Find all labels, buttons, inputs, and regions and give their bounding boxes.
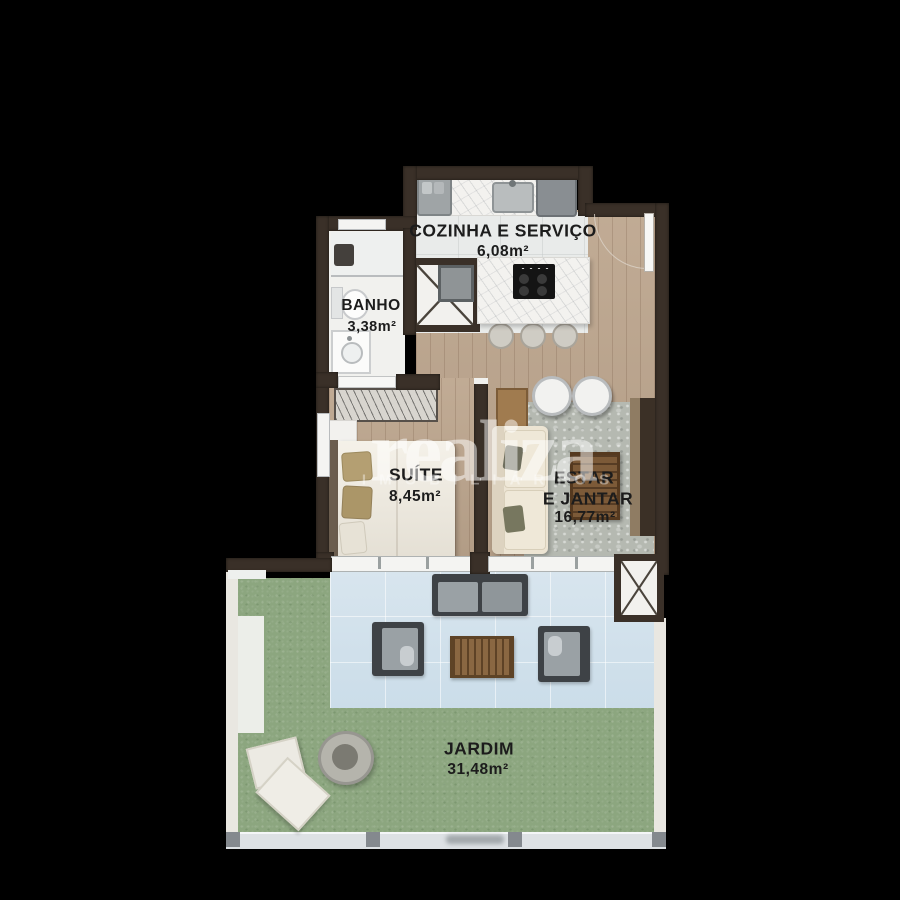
outdoor-table — [450, 636, 514, 678]
bed-pillow — [341, 485, 373, 520]
wall-right — [655, 203, 669, 575]
fire-pit — [318, 731, 374, 785]
railing-post — [226, 832, 240, 847]
bottom-right-shaft — [614, 554, 664, 622]
label-estar-area: 16,77m² — [554, 509, 615, 527]
label-banho-area: 3,38m² — [348, 319, 397, 335]
railing-post — [366, 832, 380, 847]
living-patio-door — [488, 556, 618, 572]
sofa-pillow — [502, 505, 525, 533]
bed-headboard — [329, 440, 338, 564]
wall-suite-top — [396, 374, 440, 390]
label-jardim-area: 31,48m² — [447, 761, 508, 779]
kitchen-sink — [492, 182, 534, 213]
bottom-credit-smudge — [446, 835, 504, 844]
wall-left — [316, 216, 329, 572]
watermark-subtitle: IMOBILIÁRIOS — [362, 472, 622, 489]
jardim-right-border — [654, 618, 666, 847]
washing-machine — [417, 177, 452, 216]
tv-console-shelf — [630, 398, 640, 536]
bathroom-vanity — [331, 330, 371, 374]
tv-panel — [640, 398, 655, 536]
floorplan-image: COZINHA E SERVIÇO 6,08m² BANHO 3,38m² SU… — [0, 0, 900, 900]
wall-kitchen-top — [403, 166, 593, 180]
entry-door-leaf — [644, 213, 654, 272]
divider-cap — [474, 378, 488, 384]
suite-patio-window — [331, 556, 475, 572]
island-stool — [520, 323, 546, 349]
label-jardim-name: JARDIM — [444, 739, 514, 760]
label-banho-name: BANHO — [341, 297, 400, 315]
outdoor-armchair-left — [372, 622, 424, 676]
jardim-left-border — [226, 566, 238, 847]
jardim-wall-whiteband — [228, 570, 266, 579]
wall-bathroom-bottom-left — [316, 372, 338, 388]
bed-pillow-white — [338, 521, 367, 556]
label-cozinha-area: 6,08m² — [477, 243, 529, 261]
island-stool — [552, 323, 578, 349]
label-cozinha-name: COZINHA E SERVIÇO — [409, 221, 596, 242]
island-stool — [488, 323, 514, 349]
shower-fixture — [334, 244, 354, 266]
garden-paving-strip — [238, 616, 264, 733]
bathroom-door — [338, 376, 396, 388]
railing-post — [652, 832, 666, 847]
shaft-duct-unit — [438, 265, 474, 302]
shower-glass — [331, 275, 404, 277]
suite-side-window — [317, 413, 330, 477]
bathroom-window — [338, 219, 386, 230]
outdoor-armchair-right — [538, 626, 590, 682]
wall-bathroom-kitchen — [403, 228, 416, 335]
railing-post — [508, 832, 522, 847]
outdoor-sofa — [432, 574, 528, 616]
refrigerator — [536, 176, 577, 217]
shaft-x-brace — [621, 561, 657, 615]
cooktop — [513, 264, 555, 299]
wall-living-bottom-stub — [470, 552, 490, 574]
